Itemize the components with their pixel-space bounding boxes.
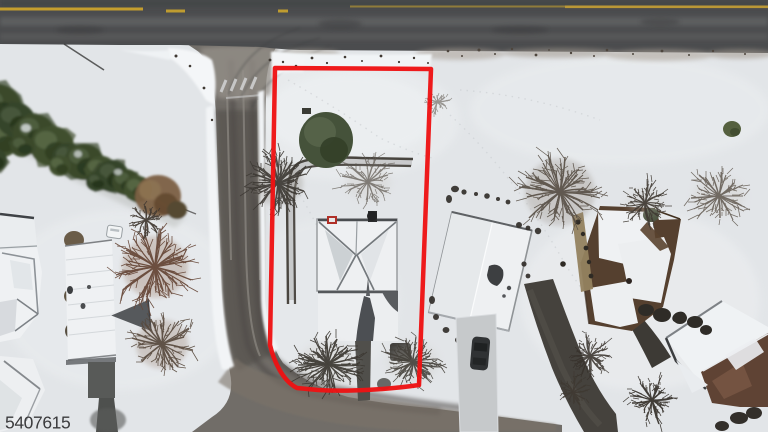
svg-text:5407615: 5407615 bbox=[5, 413, 70, 432]
